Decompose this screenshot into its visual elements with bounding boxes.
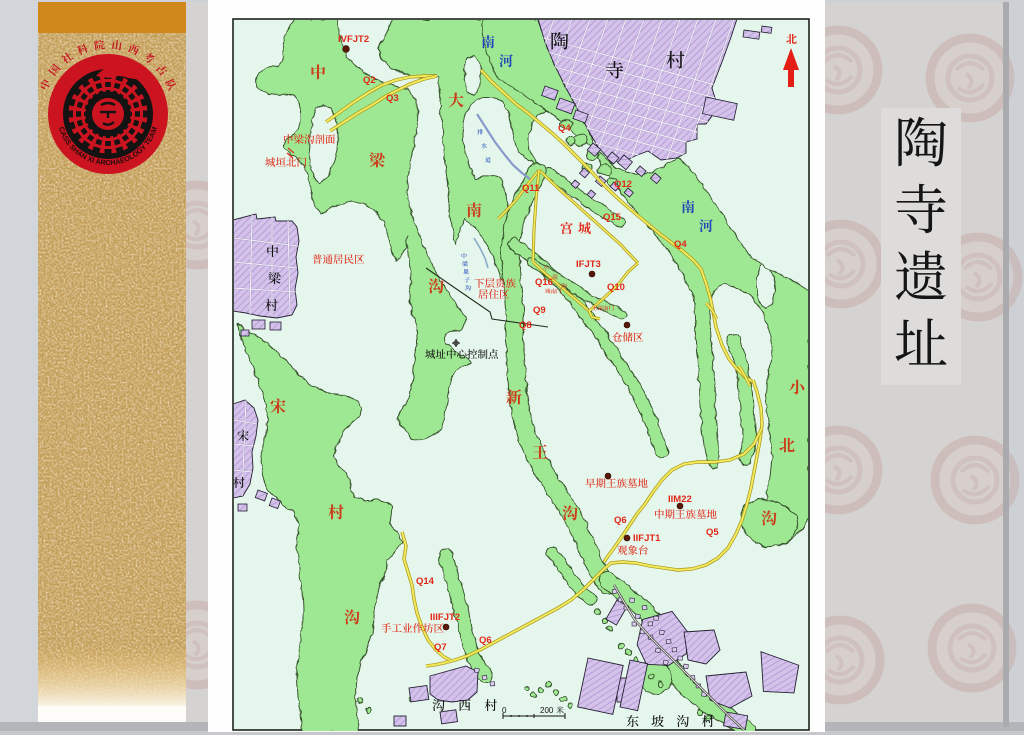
svg-text:Q11: Q11 (522, 183, 540, 194)
svg-text:Q5: Q5 (706, 527, 719, 538)
svg-text:Q4: Q4 (558, 123, 571, 134)
svg-text:Q14: Q14 (416, 576, 435, 587)
svg-text:Q6: Q6 (614, 515, 627, 526)
svg-text:Q7: Q7 (434, 642, 447, 653)
svg-text:Q8: Q8 (519, 320, 532, 331)
svg-text:Q4: Q4 (674, 239, 687, 250)
svg-text:Q15: Q15 (603, 212, 622, 223)
svg-text:200: 200 (540, 706, 554, 715)
svg-text:Q16: Q16 (535, 277, 553, 288)
svg-text:Q12: Q12 (614, 179, 632, 190)
svg-text:Q9: Q9 (533, 305, 546, 316)
svg-text:IFJT3: IFJT3 (576, 259, 601, 270)
svg-text:IVFJT2: IVFJT2 (338, 34, 369, 45)
svg-text:Q6: Q6 (479, 635, 492, 646)
svg-text:Q10: Q10 (607, 282, 625, 293)
svg-text:Q3: Q3 (386, 93, 399, 104)
svg-text:Q2: Q2 (363, 75, 376, 86)
svg-text:IIFJT1: IIFJT1 (633, 533, 661, 544)
svg-text:IIIFJT2: IIIFJT2 (430, 612, 460, 623)
